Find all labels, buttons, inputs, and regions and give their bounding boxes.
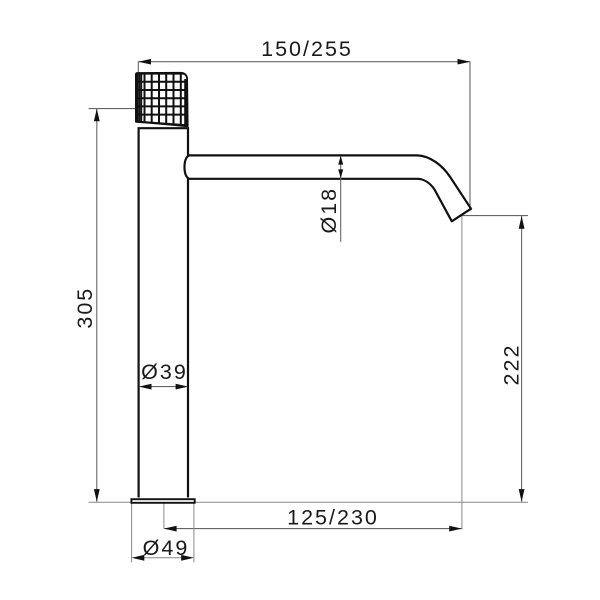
svg-text:150/255: 150/255 bbox=[261, 37, 353, 61]
svg-text:Ø49: Ø49 bbox=[143, 536, 190, 560]
svg-text:Ø39: Ø39 bbox=[141, 360, 188, 384]
svg-text:125/230: 125/230 bbox=[287, 506, 379, 530]
svg-text:305: 305 bbox=[73, 287, 97, 329]
svg-text:Ø18: Ø18 bbox=[317, 187, 341, 234]
svg-text:222: 222 bbox=[500, 344, 524, 386]
